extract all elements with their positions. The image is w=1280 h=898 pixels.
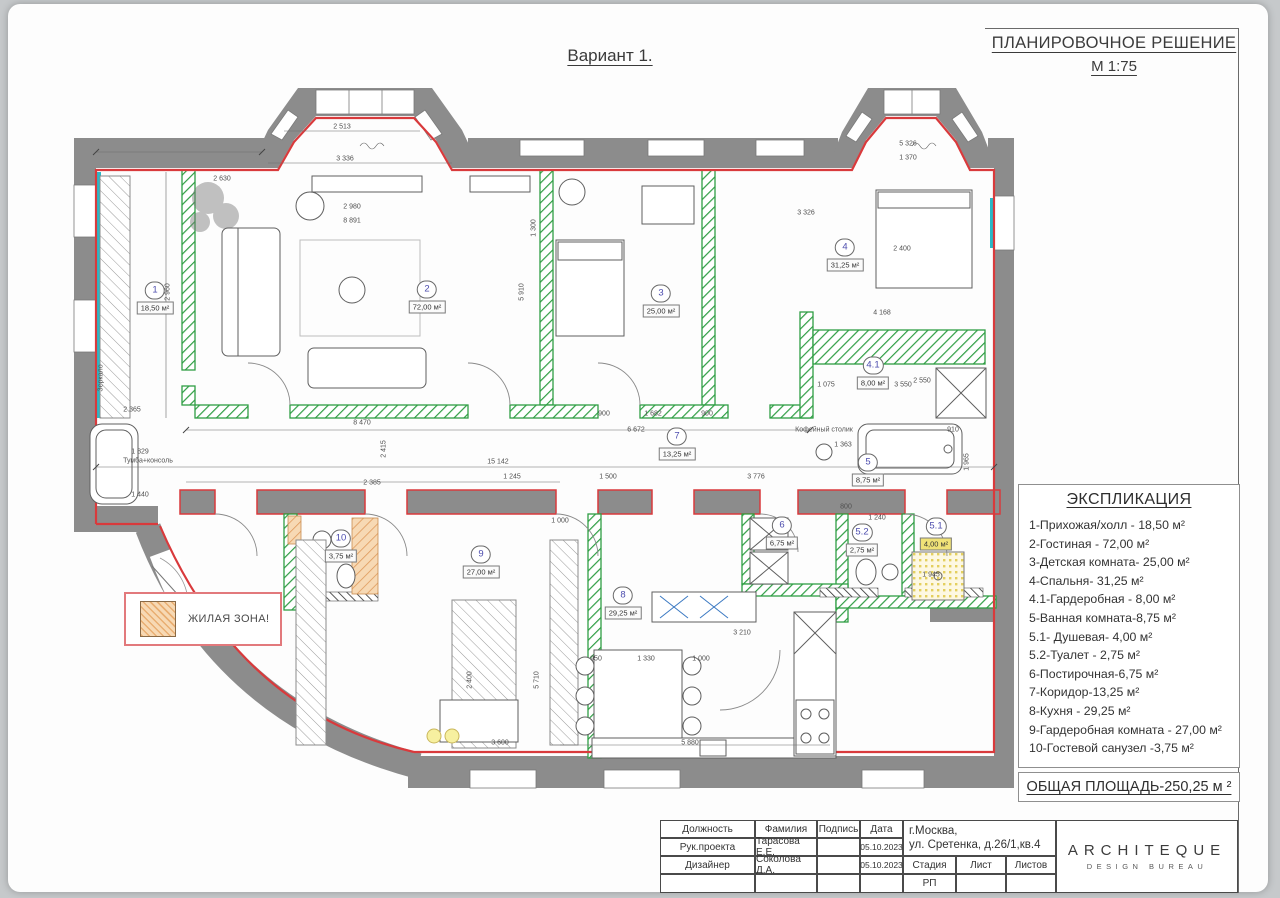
tb-header-date: Дата: [860, 820, 903, 838]
room-number-badge: 1: [145, 282, 165, 300]
explication-item: 5-Ванная комната-8,75 м²: [1029, 609, 1239, 628]
explication-item: 6-Постирочная-6,75 м²: [1029, 665, 1239, 684]
toilet-icon: [856, 559, 898, 585]
room-number-badge: 10: [331, 530, 351, 548]
room-label-4: 431,25 м²: [827, 239, 864, 272]
dimension-label: 2 980: [343, 204, 361, 211]
dimension-label: 950: [590, 656, 602, 663]
company-logo: ARCHITEQUE DESIGN BUREAU: [1056, 820, 1238, 893]
dimension-label: 2 415: [381, 440, 388, 458]
dimension-label: 3 600: [491, 740, 509, 747]
wardrobe-cross-icon: [936, 368, 986, 418]
dimension-label: 6 672: [627, 427, 645, 434]
tb-empty: [755, 874, 817, 893]
room-number-badge: 5: [858, 454, 878, 472]
tb-address-line2: ул. Сретенка, д.26/1,кв.4: [909, 838, 1040, 852]
room-area-box: 31,25 м²: [827, 259, 864, 272]
room-label-5: 58,75 м²: [852, 454, 884, 487]
tb-header-sign: Подпись: [817, 820, 860, 838]
drawing-title: ПЛАНИРОВОЧНОЕ РЕШЕНИЕ: [990, 34, 1238, 53]
dimension-label: 1 330: [637, 656, 655, 663]
explication-panel: ЭКСПЛИКАЦИЯ 1-Прихожая/холл - 18,50 м² 2…: [1018, 484, 1240, 768]
dimension-label: 8 891: [343, 218, 361, 225]
dimension-label: 2 550: [913, 378, 931, 385]
tb-address: г.Москва, ул. Сретенка, д.26/1,кв.4: [903, 820, 1056, 856]
total-area-box: ОБЩАЯ ПЛОЩАДЬ-250,25 м ²: [1018, 772, 1240, 802]
logo-name: ARCHITEQUE: [1068, 842, 1226, 859]
room-label-9: 927,00 м²: [463, 546, 500, 579]
room-label-7: 713,25 м²: [659, 428, 696, 461]
room-number-badge: 9: [471, 546, 491, 564]
dimension-label: 2 513: [333, 124, 351, 131]
plan-annotation-label: Зеркало: [98, 364, 105, 391]
dimension-label: 910: [947, 427, 959, 434]
dimension-label: 1 829: [131, 449, 149, 456]
dimension-label: 1 965: [964, 453, 971, 471]
room-label-10: 103,75 м²: [325, 530, 357, 563]
tb-empty: [860, 874, 903, 893]
dimension-label: 1 240: [868, 515, 886, 522]
dimension-label: 3 336: [336, 156, 354, 163]
tb-empty: [817, 874, 860, 893]
tb-name-2: Соколова Д.А.: [755, 856, 817, 874]
explication-item: 8-Кухня - 29,25 м²: [1029, 702, 1239, 721]
tb-sign-2: [817, 856, 860, 874]
title-block: Должность Фамилия Подпись Дата Рук.проек…: [660, 820, 1238, 893]
tb-sheets-value: [1006, 874, 1056, 893]
dimension-label: 2 630: [213, 176, 231, 183]
dimension-label: 15 142: [487, 459, 508, 466]
room-area-box: 18,50 м²: [137, 302, 174, 315]
tb-role-2: Дизайнер: [660, 856, 755, 874]
room-area-box: 8,75 м²: [852, 474, 884, 487]
dimension-label: 800: [840, 504, 852, 511]
explication-item: 2-Гостиная - 72,00 м²: [1029, 535, 1239, 554]
explication-item: 5.2-Туалет - 2,75 м²: [1029, 646, 1239, 665]
tb-header-role: Должность: [660, 820, 755, 838]
room-label-6: 66,75 м²: [766, 517, 798, 550]
dimension-label: 1 440: [131, 492, 149, 499]
dimension-label: 2 400: [893, 246, 911, 253]
dimension-label: 5 880: [681, 740, 699, 747]
dimension-label: 5 326: [899, 141, 917, 148]
room-label-5.1: 5.14,00 м²: [920, 518, 952, 551]
living-zone-label: ЖИЛАЯ ЗОНА!: [188, 613, 269, 625]
explication-item: 9-Гардеробная комната - 27,00 м²: [1029, 721, 1239, 740]
dimension-label: 3 550: [894, 382, 912, 389]
explication-item: 5.1- Душевая- 4,00 м²: [1029, 628, 1239, 647]
explication-item: 7-Коридор-13,25 м²: [1029, 683, 1239, 702]
room-area-box: 4,00 м²: [920, 538, 952, 551]
room-label-1: 118,50 м²: [137, 282, 174, 315]
explication-item: 4-Спальня- 31,25 м²: [1029, 572, 1239, 591]
tb-stage-header: Стадия: [903, 856, 956, 874]
tb-sign-1: [817, 838, 860, 856]
sheet-frame-top: [985, 28, 1239, 29]
dimension-label: 900: [701, 411, 713, 418]
dimension-label: 3 776: [747, 474, 765, 481]
room-number-badge: 4.1: [862, 357, 883, 375]
room-area-box: 8,00 м²: [857, 377, 889, 390]
dimension-label: 1 075: [817, 382, 835, 389]
plan-annotation-label: Кофейный столик: [795, 427, 853, 434]
room-label-3: 325,00 м²: [643, 285, 680, 318]
tb-sheets-header: Листов: [1006, 856, 1056, 874]
corridor-wall: [180, 490, 1000, 514]
tb-address-line1: г.Москва,: [909, 824, 957, 838]
dimension-label: 3 210: [733, 630, 751, 637]
living-zone-swatch-icon: [140, 601, 176, 637]
dimension-label: 1 245: [503, 474, 521, 481]
cooktop-icon: [796, 700, 834, 754]
room-area-box: 13,25 м²: [659, 448, 696, 461]
drawing-scale: М 1:75: [990, 58, 1238, 75]
room-area-box: 6,75 м²: [766, 537, 798, 550]
room-area-box: 27,00 м²: [463, 566, 500, 579]
dimension-label: 1 682: [644, 411, 662, 418]
room-number-badge: 2: [417, 281, 437, 299]
dimension-label: 2 365: [123, 407, 141, 414]
dimension-label: 1 945: [922, 572, 940, 579]
explication-item: 4.1-Гардеробная - 8,00 м²: [1029, 590, 1239, 609]
explication-item: 10-Гостевой санузел -3,75 м²: [1029, 739, 1239, 758]
room-area-box: 2,75 м²: [846, 544, 878, 557]
room-label-2: 272,00 м²: [409, 281, 446, 314]
explication-title: ЭКСПЛИКАЦИЯ: [1029, 491, 1229, 509]
dimension-label: 4 168: [873, 310, 891, 317]
room-area-box: 3,75 м²: [325, 550, 357, 563]
dimension-label: 1 363: [834, 442, 852, 449]
drawing-title-block: ПЛАНИРОВОЧНОЕ РЕШЕНИЕ М 1:75: [990, 34, 1238, 75]
explication-item: 1-Прихожая/холл - 18,50 м²: [1029, 516, 1239, 535]
dimension-label: 2 400: [467, 671, 474, 689]
dimension-label: 5 710: [534, 671, 541, 689]
dimension-label: 1 000: [551, 518, 569, 525]
room-area-box: 25,00 м²: [643, 305, 680, 318]
kitchen-upper-cabinets: [652, 592, 756, 622]
room-number-badge: 8: [613, 587, 633, 605]
tb-role-1: Рук.проекта: [660, 838, 755, 856]
room-area-box: 29,25 м²: [605, 607, 642, 620]
room-number-badge: 6: [772, 517, 792, 535]
dimension-label: 3 326: [797, 210, 815, 217]
dimension-label: 2 385: [363, 480, 381, 487]
room-label-4.1: 4.18,00 м²: [857, 357, 889, 390]
room-number-badge: 5.2: [851, 524, 872, 542]
total-area-text: ОБЩАЯ ПЛОЩАДЬ-250,25 м ²: [1027, 779, 1232, 795]
room-number-badge: 4: [835, 239, 855, 257]
room-number-badge: 7: [667, 428, 687, 446]
explication-item: 3-Детская комната- 25,00 м²: [1029, 553, 1239, 572]
dimension-label: 8 470: [353, 420, 371, 427]
room-label-8: 829,25 м²: [605, 587, 642, 620]
dimension-label: 1 500: [599, 474, 617, 481]
room-number-badge: 3: [651, 285, 671, 303]
variant-title: Вариант 1.: [520, 46, 700, 66]
tb-stage-value: РП: [903, 874, 956, 893]
tb-sheet-value: [956, 874, 1006, 893]
room-area-box: 72,00 м²: [409, 301, 446, 314]
dimension-label: 1 300: [531, 219, 538, 237]
dimension-label: 900: [598, 411, 610, 418]
plan-annotation-label: Тумба+консоль: [123, 458, 173, 465]
dimension-label: 1 370: [899, 155, 917, 162]
room-label-5.2: 5.22,75 м²: [846, 524, 878, 557]
dimension-label: 1 000: [692, 656, 710, 663]
tb-empty: [660, 874, 755, 893]
dimension-label: 5 910: [519, 283, 526, 301]
room-number-badge: 5.1: [925, 518, 946, 536]
tb-date-2: 05.10.2023: [860, 856, 903, 874]
living-zone-legend: ЖИЛАЯ ЗОНА!: [124, 592, 282, 646]
plant-icon: [190, 182, 239, 232]
logo-tagline: DESIGN BUREAU: [1087, 862, 1208, 871]
tb-sheet-header: Лист: [956, 856, 1006, 874]
tb-date-1: 05.10.2023: [860, 838, 903, 856]
